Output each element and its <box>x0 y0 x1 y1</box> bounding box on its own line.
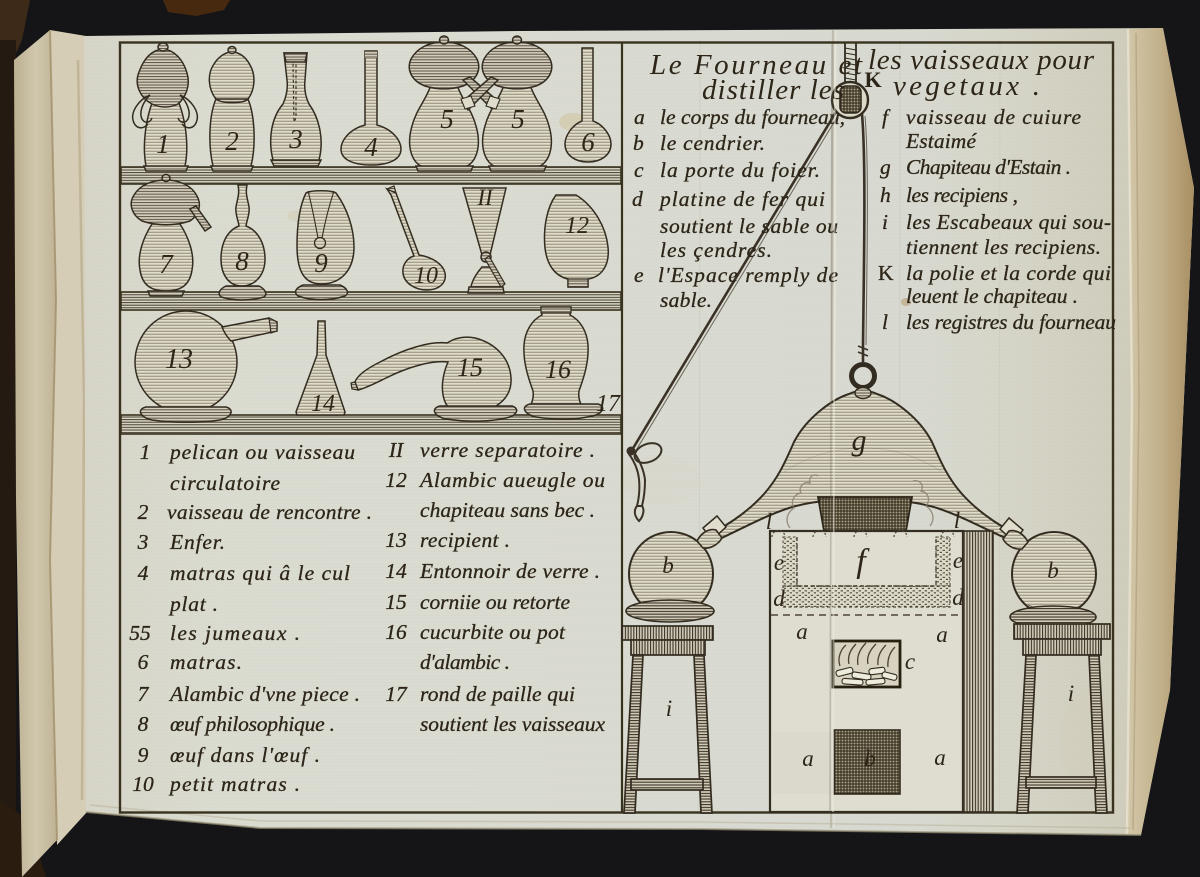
svg-text:a: a <box>802 746 814 771</box>
svg-text:les recipiens ,: les recipiens , <box>906 183 1018 207</box>
svg-text:II: II <box>388 438 404 462</box>
svg-text:9: 9 <box>314 248 328 278</box>
svg-text:d: d <box>632 187 643 211</box>
svg-text:verre separatoire .: verre separatoire . <box>420 438 595 462</box>
svg-text:II: II <box>476 185 494 210</box>
svg-text:4: 4 <box>364 132 378 162</box>
svg-text:soutient le sable ou: soutient le sable ou <box>660 214 838 238</box>
svg-text:14: 14 <box>311 391 335 417</box>
svg-text:c: c <box>634 158 644 182</box>
svg-text:e: e <box>953 548 963 573</box>
svg-text:l: l <box>954 508 960 533</box>
svg-text:l: l <box>766 509 772 534</box>
svg-text:2: 2 <box>225 126 239 156</box>
svg-text:4: 4 <box>138 561 149 585</box>
svg-text:6: 6 <box>581 127 595 157</box>
svg-text:la porte du foier.: la porte du foier. <box>660 158 820 182</box>
svg-text:Alambic aueugle ou: Alambic aueugle ou <box>418 468 605 492</box>
svg-text:vaisseau de rencontre .: vaisseau de rencontre . <box>167 500 372 524</box>
svg-text:d: d <box>952 585 964 610</box>
svg-text:Alambic d'vne piece .: Alambic d'vne piece . <box>168 682 360 706</box>
svg-text:le corps du fourneau,: le corps du fourneau, <box>660 105 845 129</box>
svg-text:petit matras .: petit matras . <box>168 772 300 796</box>
svg-text:le cendrier.: le cendrier. <box>660 131 765 155</box>
svg-text:pelican ou vaisseau: pelican ou vaisseau <box>168 440 355 464</box>
svg-text:d'alambic .: d'alambic . <box>420 650 510 674</box>
svg-text:3: 3 <box>288 124 303 154</box>
svg-text:les jumeaux .: les jumeaux . <box>170 621 300 645</box>
svg-text:c: c <box>905 649 915 674</box>
svg-text:œuf dans l'œuf .: œuf dans l'œuf . <box>170 743 320 767</box>
svg-text:g: g <box>880 155 891 179</box>
svg-text:la polie et la corde qui: la polie et la corde qui <box>906 261 1111 285</box>
svg-text:les çendres.: les çendres. <box>660 238 772 262</box>
svg-text:matras.: matras. <box>170 650 242 674</box>
svg-text:13: 13 <box>385 528 407 552</box>
svg-text:a: a <box>634 105 645 129</box>
svg-text:1: 1 <box>140 440 151 464</box>
svg-text:b: b <box>1047 558 1059 583</box>
svg-text:a: a <box>936 622 948 647</box>
svg-text:vaisseau de cuiure: vaisseau de cuiure <box>906 105 1081 129</box>
svg-text:3: 3 <box>137 530 149 554</box>
svg-text:6: 6 <box>138 650 149 674</box>
svg-text:14: 14 <box>385 559 407 583</box>
svg-text:e: e <box>634 263 644 287</box>
svg-text:rond de paille qui: rond de paille qui <box>420 682 575 706</box>
svg-text:plat .: plat . <box>168 592 218 616</box>
svg-text:Entonnoir de verre .: Entonnoir de verre . <box>419 559 600 583</box>
svg-text:i: i <box>882 210 888 234</box>
svg-text:9: 9 <box>138 743 149 767</box>
svg-text:12: 12 <box>385 468 407 492</box>
svg-text:i: i <box>1068 681 1074 706</box>
svg-text:corniie ou retorte: corniie ou retorte <box>420 590 570 614</box>
svg-text:2: 2 <box>138 500 149 524</box>
svg-text:13: 13 <box>165 344 193 375</box>
svg-text:8: 8 <box>138 712 149 736</box>
svg-text:les Escabeaux qui sou-: les Escabeaux qui sou- <box>906 210 1111 234</box>
svg-text:15: 15 <box>385 590 407 614</box>
svg-text:i: i <box>666 696 672 721</box>
svg-text:chapiteau sans bec .: chapiteau sans bec . <box>420 498 595 522</box>
svg-text:tiennent les recipiens.: tiennent les recipiens. <box>906 235 1101 259</box>
svg-text:œuf philosophique .: œuf philosophique . <box>170 712 335 736</box>
svg-text:platine de fer qui: platine de fer qui <box>658 187 825 211</box>
svg-text:8: 8 <box>235 246 249 276</box>
svg-text:Enfer.: Enfer. <box>169 530 225 554</box>
svg-text:les registres du fourneau: les registres du fourneau <box>906 310 1116 334</box>
svg-text:h: h <box>880 183 891 207</box>
svg-text:recipient .: recipient . <box>420 528 510 552</box>
svg-text:5: 5 <box>511 104 525 134</box>
svg-text:d: d <box>773 586 785 611</box>
svg-text:Chapiteau d'Estain .: Chapiteau d'Estain . <box>906 155 1071 179</box>
svg-text:17: 17 <box>385 682 408 706</box>
svg-text:10: 10 <box>414 263 438 289</box>
svg-text:g: g <box>852 424 867 457</box>
svg-text:l: l <box>882 310 888 334</box>
svg-text:e: e <box>774 550 784 575</box>
svg-text:10: 10 <box>132 772 154 796</box>
svg-text:16: 16 <box>385 620 407 644</box>
svg-text:a: a <box>796 619 808 644</box>
svg-text:cucurbite ou pot: cucurbite ou pot <box>420 620 566 644</box>
svg-text:b: b <box>662 553 674 578</box>
svg-text:1: 1 <box>156 129 170 159</box>
svg-text:a: a <box>934 745 946 770</box>
svg-text:distiller les: distiller les <box>702 74 844 106</box>
svg-text:vegetaux .: vegetaux . <box>893 70 1040 102</box>
svg-text:Estaimé: Estaimé <box>905 129 977 153</box>
svg-text:16: 16 <box>545 355 571 384</box>
svg-text:matras qui â le cul: matras qui â le cul <box>170 561 350 585</box>
svg-text:7: 7 <box>138 682 150 706</box>
svg-text:55: 55 <box>129 621 151 645</box>
svg-text:5: 5 <box>440 104 454 134</box>
svg-text:12: 12 <box>565 213 589 239</box>
svg-text:b: b <box>864 746 876 771</box>
svg-text:15: 15 <box>457 353 483 382</box>
svg-text:K: K <box>878 261 894 285</box>
svg-text:7: 7 <box>159 249 174 279</box>
svg-text:l'Espace remply de: l'Espace remply de <box>658 263 838 287</box>
svg-text:soutient les vaisseaux: soutient les vaisseaux <box>420 712 605 736</box>
svg-text:leuent le chapiteau .: leuent le chapiteau . <box>906 284 1078 308</box>
svg-text:circulatoire: circulatoire <box>170 471 280 495</box>
svg-text:sable.: sable. <box>660 288 712 312</box>
svg-text:17: 17 <box>596 391 621 417</box>
svg-text:b: b <box>633 131 644 155</box>
